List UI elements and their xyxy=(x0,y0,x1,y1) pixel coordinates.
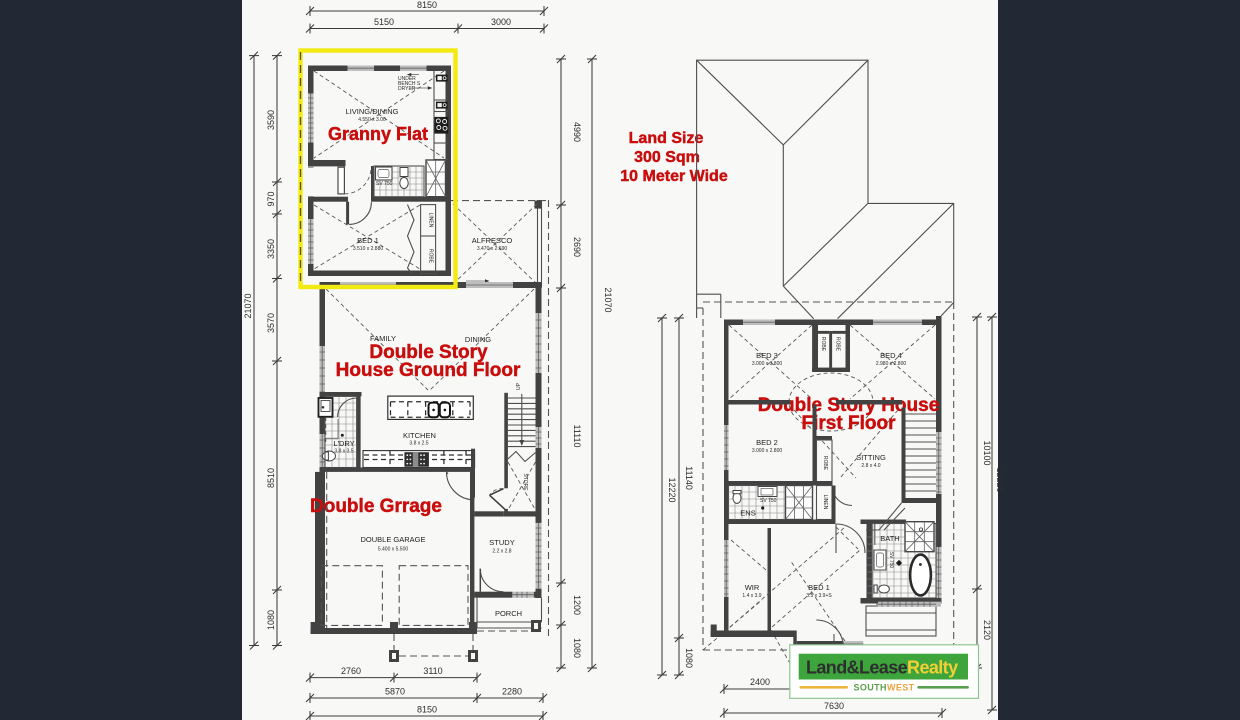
svg-text:Double Grrage: Double Grrage xyxy=(310,496,442,517)
svg-text:DOUBLE GARAGE: DOUBLE GARAGE xyxy=(360,535,425,544)
svg-text:1.4 x 3.9: 1.4 x 3.9 xyxy=(742,593,761,599)
svg-text:ROBE: ROBE xyxy=(820,337,826,352)
svg-text:5150: 5150 xyxy=(374,17,394,27)
svg-text:Granny Flat: Granny Flat xyxy=(328,124,428,144)
svg-text:3.510 x 2.880: 3.510 x 2.880 xyxy=(353,246,384,252)
svg-text:LIVING/DINING: LIVING/DINING xyxy=(346,107,399,116)
svg-text:UP: UP xyxy=(516,382,522,390)
svg-text:3110: 3110 xyxy=(423,666,442,676)
svg-text:ROBE: ROBE xyxy=(835,337,841,352)
svg-text:BED 3: BED 3 xyxy=(756,351,778,360)
svg-text:STORE: STORE xyxy=(522,473,528,491)
svg-text:3.470 x 2.690: 3.470 x 2.690 xyxy=(477,246,508,252)
svg-text:BED 1: BED 1 xyxy=(357,236,379,245)
svg-text:8150: 8150 xyxy=(417,0,437,10)
svg-text:DRYER: DRYER xyxy=(398,86,416,92)
svg-text:7630: 7630 xyxy=(824,701,844,711)
svg-text:ROBE: ROBE xyxy=(428,249,434,264)
svg-text:SOUTHWEST: SOUTHWEST xyxy=(853,683,914,693)
svg-text:1080: 1080 xyxy=(684,648,694,668)
svg-text:LINEN: LINEN xyxy=(822,495,828,510)
svg-text:BED 2: BED 2 xyxy=(756,438,778,447)
svg-text:Land Size: Land Size xyxy=(629,130,704,147)
svg-text:300 Sqm: 300 Sqm xyxy=(634,149,700,166)
svg-text:L'DRY: L'DRY xyxy=(333,439,354,448)
svg-text:2280: 2280 xyxy=(502,687,522,697)
svg-text:ENS: ENS xyxy=(740,509,755,518)
svg-text:LINEN: LINEN xyxy=(428,213,434,228)
svg-text:11140: 11140 xyxy=(684,466,694,490)
svg-text:2400: 2400 xyxy=(750,677,770,687)
svg-text:3.000 x 3.800: 3.000 x 3.800 xyxy=(752,361,783,367)
svg-text:PORCH: PORCH xyxy=(495,609,522,618)
svg-text:SV 750: SV 750 xyxy=(760,498,777,504)
svg-text:2.8 x 4.0: 2.8 x 4.0 xyxy=(861,463,880,469)
svg-text:4990: 4990 xyxy=(572,122,582,142)
svg-text:1080: 1080 xyxy=(572,638,582,658)
svg-text:BED 1: BED 1 xyxy=(808,583,830,592)
svg-text:3000: 3000 xyxy=(491,17,511,27)
svg-text:2690: 2690 xyxy=(572,237,582,257)
svg-text:2.2 x 2.8: 2.2 x 2.8 xyxy=(492,549,511,555)
svg-text:5.400 x 5.500: 5.400 x 5.500 xyxy=(378,547,409,553)
svg-text:2120: 2120 xyxy=(982,620,992,640)
svg-text:3570: 3570 xyxy=(266,313,276,333)
svg-text:SV 750: SV 750 xyxy=(376,181,393,187)
svg-text:SV 750: SV 750 xyxy=(888,552,894,569)
svg-text:2.980 x 2.800: 2.980 x 2.800 xyxy=(876,361,907,367)
svg-text:10 Meter Wide: 10 Meter Wide xyxy=(620,168,728,185)
svg-text:2760: 2760 xyxy=(341,666,361,676)
svg-text:21070: 21070 xyxy=(603,287,613,312)
svg-text:3.8 x 2.5: 3.8 x 2.5 xyxy=(409,441,428,447)
svg-text:8510: 8510 xyxy=(266,468,276,488)
svg-text:970: 970 xyxy=(266,191,276,206)
svg-text:11110: 11110 xyxy=(572,424,582,447)
svg-text:Land&LeaseRealty: Land&LeaseRealty xyxy=(806,658,958,678)
svg-text:ROBE: ROBE xyxy=(822,456,828,471)
svg-text:3350: 3350 xyxy=(266,239,276,259)
svg-text:KITCHEN: KITCHEN xyxy=(403,431,436,440)
svg-text:ALFRESCO: ALFRESCO xyxy=(472,236,513,245)
svg-text:SITTING: SITTING xyxy=(856,453,886,462)
svg-text:1080: 1080 xyxy=(266,610,276,630)
svg-text:STUDY: STUDY xyxy=(489,538,514,547)
svg-text:WIR: WIR xyxy=(745,583,760,592)
svg-text:1200: 1200 xyxy=(572,595,582,615)
svg-text:3590: 3590 xyxy=(266,110,276,130)
svg-text:10100: 10100 xyxy=(982,440,992,465)
svg-text:BED 4: BED 4 xyxy=(880,351,902,360)
svg-text:4.550 x 3.00: 4.550 x 3.00 xyxy=(358,117,386,123)
svg-text:3.8 x 3.5: 3.8 x 3.5 xyxy=(334,449,353,455)
svg-text:5870: 5870 xyxy=(385,687,405,697)
svg-text:BATH: BATH xyxy=(880,534,899,543)
svg-text:12220: 12220 xyxy=(995,467,1005,492)
svg-text:3.000 x 2.800: 3.000 x 2.800 xyxy=(752,448,783,454)
svg-text:House Ground Floor: House Ground Floor xyxy=(336,360,521,381)
svg-text:12220: 12220 xyxy=(667,477,677,502)
svg-text:21070: 21070 xyxy=(243,293,253,318)
svg-text:8150: 8150 xyxy=(417,705,437,715)
